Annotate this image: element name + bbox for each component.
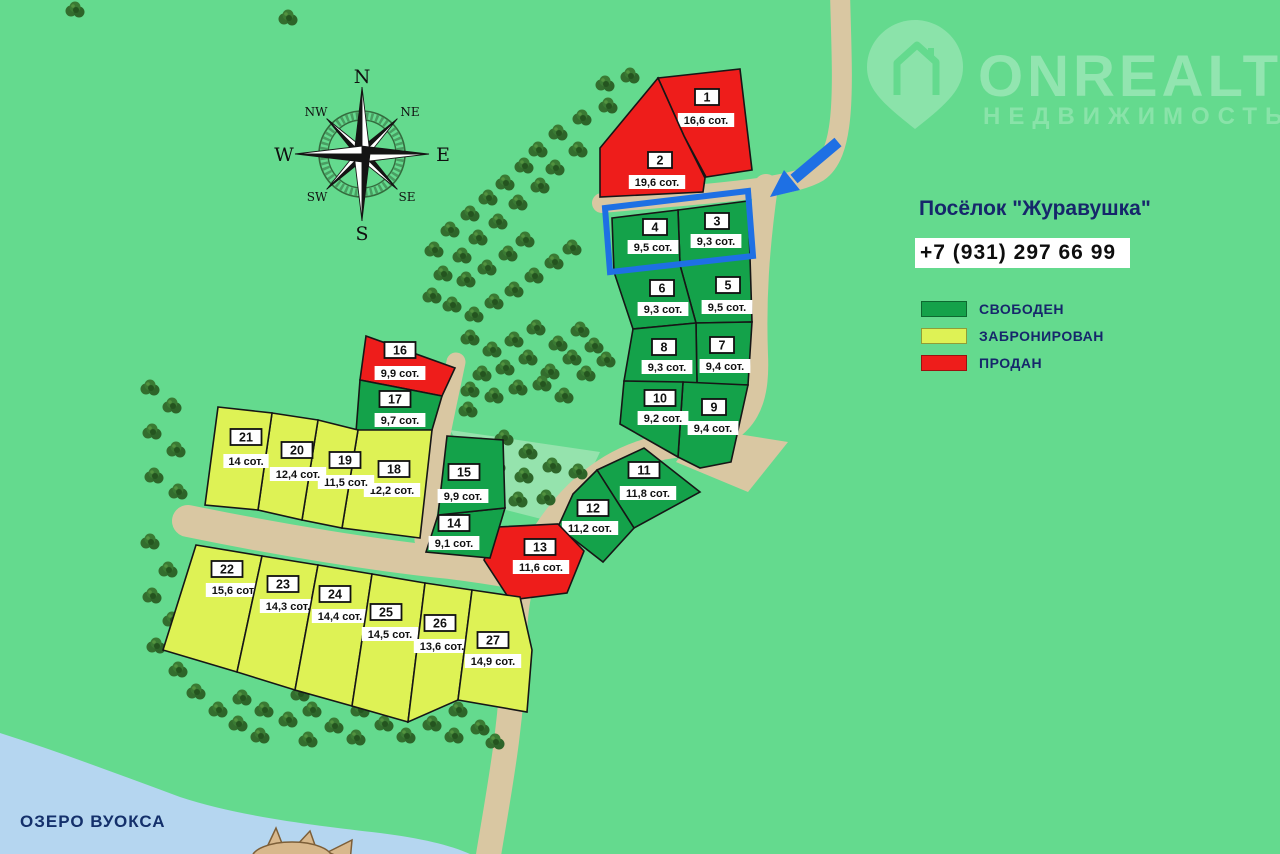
legend-label-booked: ЗАБРОНИРОВАН bbox=[979, 328, 1104, 344]
plot-number: 1 bbox=[704, 91, 711, 105]
plot-area-label: 14 сот. bbox=[228, 456, 263, 468]
settlement-title: Посёлок "Журавушка" bbox=[919, 197, 1151, 221]
plot-number: 9 bbox=[711, 401, 718, 415]
plot-27[interactable]: 2714,9 сот. bbox=[458, 590, 532, 712]
plot-number: 2 bbox=[657, 154, 664, 168]
plot-area-label: 11,8 сот. bbox=[626, 488, 670, 500]
plot-8[interactable]: 89,3 сот. bbox=[624, 323, 697, 384]
compass-label-n: N bbox=[354, 66, 371, 88]
plot-area-label: 14,5 сот. bbox=[368, 629, 413, 641]
plot-number: 20 bbox=[290, 444, 304, 458]
legend-item-sold: ПРОДАН bbox=[921, 355, 1104, 371]
lake-label: ОЗЕРО ВУОКСА bbox=[20, 812, 166, 832]
plot-area-label: 9,3 сот. bbox=[648, 362, 686, 374]
legend-swatch-sold bbox=[921, 355, 967, 371]
legend-item-booked: ЗАБРОНИРОВАН bbox=[921, 328, 1104, 344]
plot-number: 19 bbox=[338, 454, 352, 468]
site-plan-map: 116,6 сот.219,6 сот.39,3 сот.49,5 сот.59… bbox=[0, 0, 1280, 854]
plot-area-label: 11,5 сот. bbox=[324, 477, 368, 489]
plot-area-label: 9,9 сот. bbox=[444, 491, 482, 503]
legend-label-sold: ПРОДАН bbox=[979, 355, 1042, 371]
compass-label-se: SE bbox=[399, 190, 416, 204]
plot-area-label: 9,5 сот. bbox=[634, 242, 672, 254]
plot-number: 24 bbox=[328, 588, 342, 602]
plot-number: 4 bbox=[652, 221, 659, 235]
plot-number: 22 bbox=[220, 563, 234, 577]
plot-number: 3 bbox=[714, 215, 721, 229]
plot-area-label: 19,6 сот. bbox=[635, 177, 680, 189]
plot-27-shape[interactable] bbox=[458, 590, 532, 712]
plot-area-label: 9,3 сот. bbox=[697, 236, 735, 248]
plot-number: 7 bbox=[719, 339, 726, 353]
plot-number: 23 bbox=[276, 578, 290, 592]
plot-area-label: 14,3 сот. bbox=[266, 601, 311, 613]
plot-area-label: 9,5 сот. bbox=[708, 302, 746, 314]
onrealt-brand-text: ONREALT bbox=[978, 44, 1280, 109]
plot-number: 10 bbox=[653, 392, 667, 406]
compass-label-w: W bbox=[274, 144, 294, 166]
plot-area-label: 11,6 сот. bbox=[519, 562, 563, 574]
plot-area-label: 14,9 сот. bbox=[471, 656, 516, 668]
compass-label-sw: SW bbox=[307, 190, 328, 204]
plot-number: 8 bbox=[661, 341, 668, 355]
plot-7[interactable]: 79,4 сот. bbox=[696, 322, 752, 385]
plot-area-label: 9,1 сот. bbox=[435, 538, 473, 550]
plot-number: 13 bbox=[533, 541, 547, 555]
plot-area-label: 9,3 сот. bbox=[644, 304, 682, 316]
onrealt-subtitle-text: НЕДВИЖИМОСТЬ bbox=[983, 103, 1280, 130]
legend-label-free: СВОБОДЕН bbox=[979, 301, 1064, 317]
plot-number: 16 bbox=[393, 344, 407, 358]
plot-area-label: 9,9 сот. bbox=[381, 368, 419, 380]
map-canvas: 116,6 сот.219,6 сот.39,3 сот.49,5 сот.59… bbox=[0, 0, 1280, 854]
phone-number: +7 (931) 297 66 99 bbox=[915, 238, 1130, 268]
plot-number: 25 bbox=[379, 606, 393, 620]
plot-area-label: 12,4 сот. bbox=[276, 469, 321, 481]
plot-area-label: 9,4 сот. bbox=[694, 423, 732, 435]
plot-number: 26 bbox=[433, 617, 447, 631]
legend-swatch-booked bbox=[921, 328, 967, 344]
plot-area-label: 16,6 сот. bbox=[684, 115, 729, 127]
compass-label-e: E bbox=[436, 144, 450, 166]
plot-area-label: 9,2 сот. bbox=[644, 413, 682, 425]
compass-label-nw: NW bbox=[305, 105, 329, 119]
plot-area-label: 15,6 сот. bbox=[212, 585, 257, 597]
compass-label-ne: NE bbox=[400, 105, 419, 119]
plot-area-label: 11,2 сот. bbox=[568, 523, 612, 535]
plot-number: 21 bbox=[239, 431, 253, 445]
plot-number: 14 bbox=[447, 517, 461, 531]
compass-label-s: S bbox=[355, 223, 368, 245]
legend-item-free: СВОБОДЕН bbox=[921, 301, 1104, 317]
plot-number: 15 bbox=[457, 466, 471, 480]
plot-number: 17 bbox=[388, 393, 402, 407]
plot-area-label: 12,2 сот. bbox=[370, 485, 415, 497]
plot-number: 6 bbox=[659, 282, 666, 296]
plot-number: 18 bbox=[387, 463, 401, 477]
plot-area-label: 14,4 сот. bbox=[318, 611, 363, 623]
plot-number: 27 bbox=[486, 634, 500, 648]
plot-area-label: 9,4 сот. bbox=[706, 361, 744, 373]
plot-area-label: 9,7 сот. bbox=[381, 415, 419, 427]
plot-area-label: 13,6 сот. bbox=[420, 641, 465, 653]
legend-swatch-free bbox=[921, 301, 967, 317]
status-legend: СВОБОДЕН ЗАБРОНИРОВАН ПРОДАН bbox=[921, 301, 1104, 371]
plot-number: 5 bbox=[725, 279, 732, 293]
plot-15[interactable]: 159,9 сот. bbox=[438, 436, 505, 515]
plot-number: 12 bbox=[586, 502, 600, 516]
plot-number: 11 bbox=[637, 464, 650, 478]
